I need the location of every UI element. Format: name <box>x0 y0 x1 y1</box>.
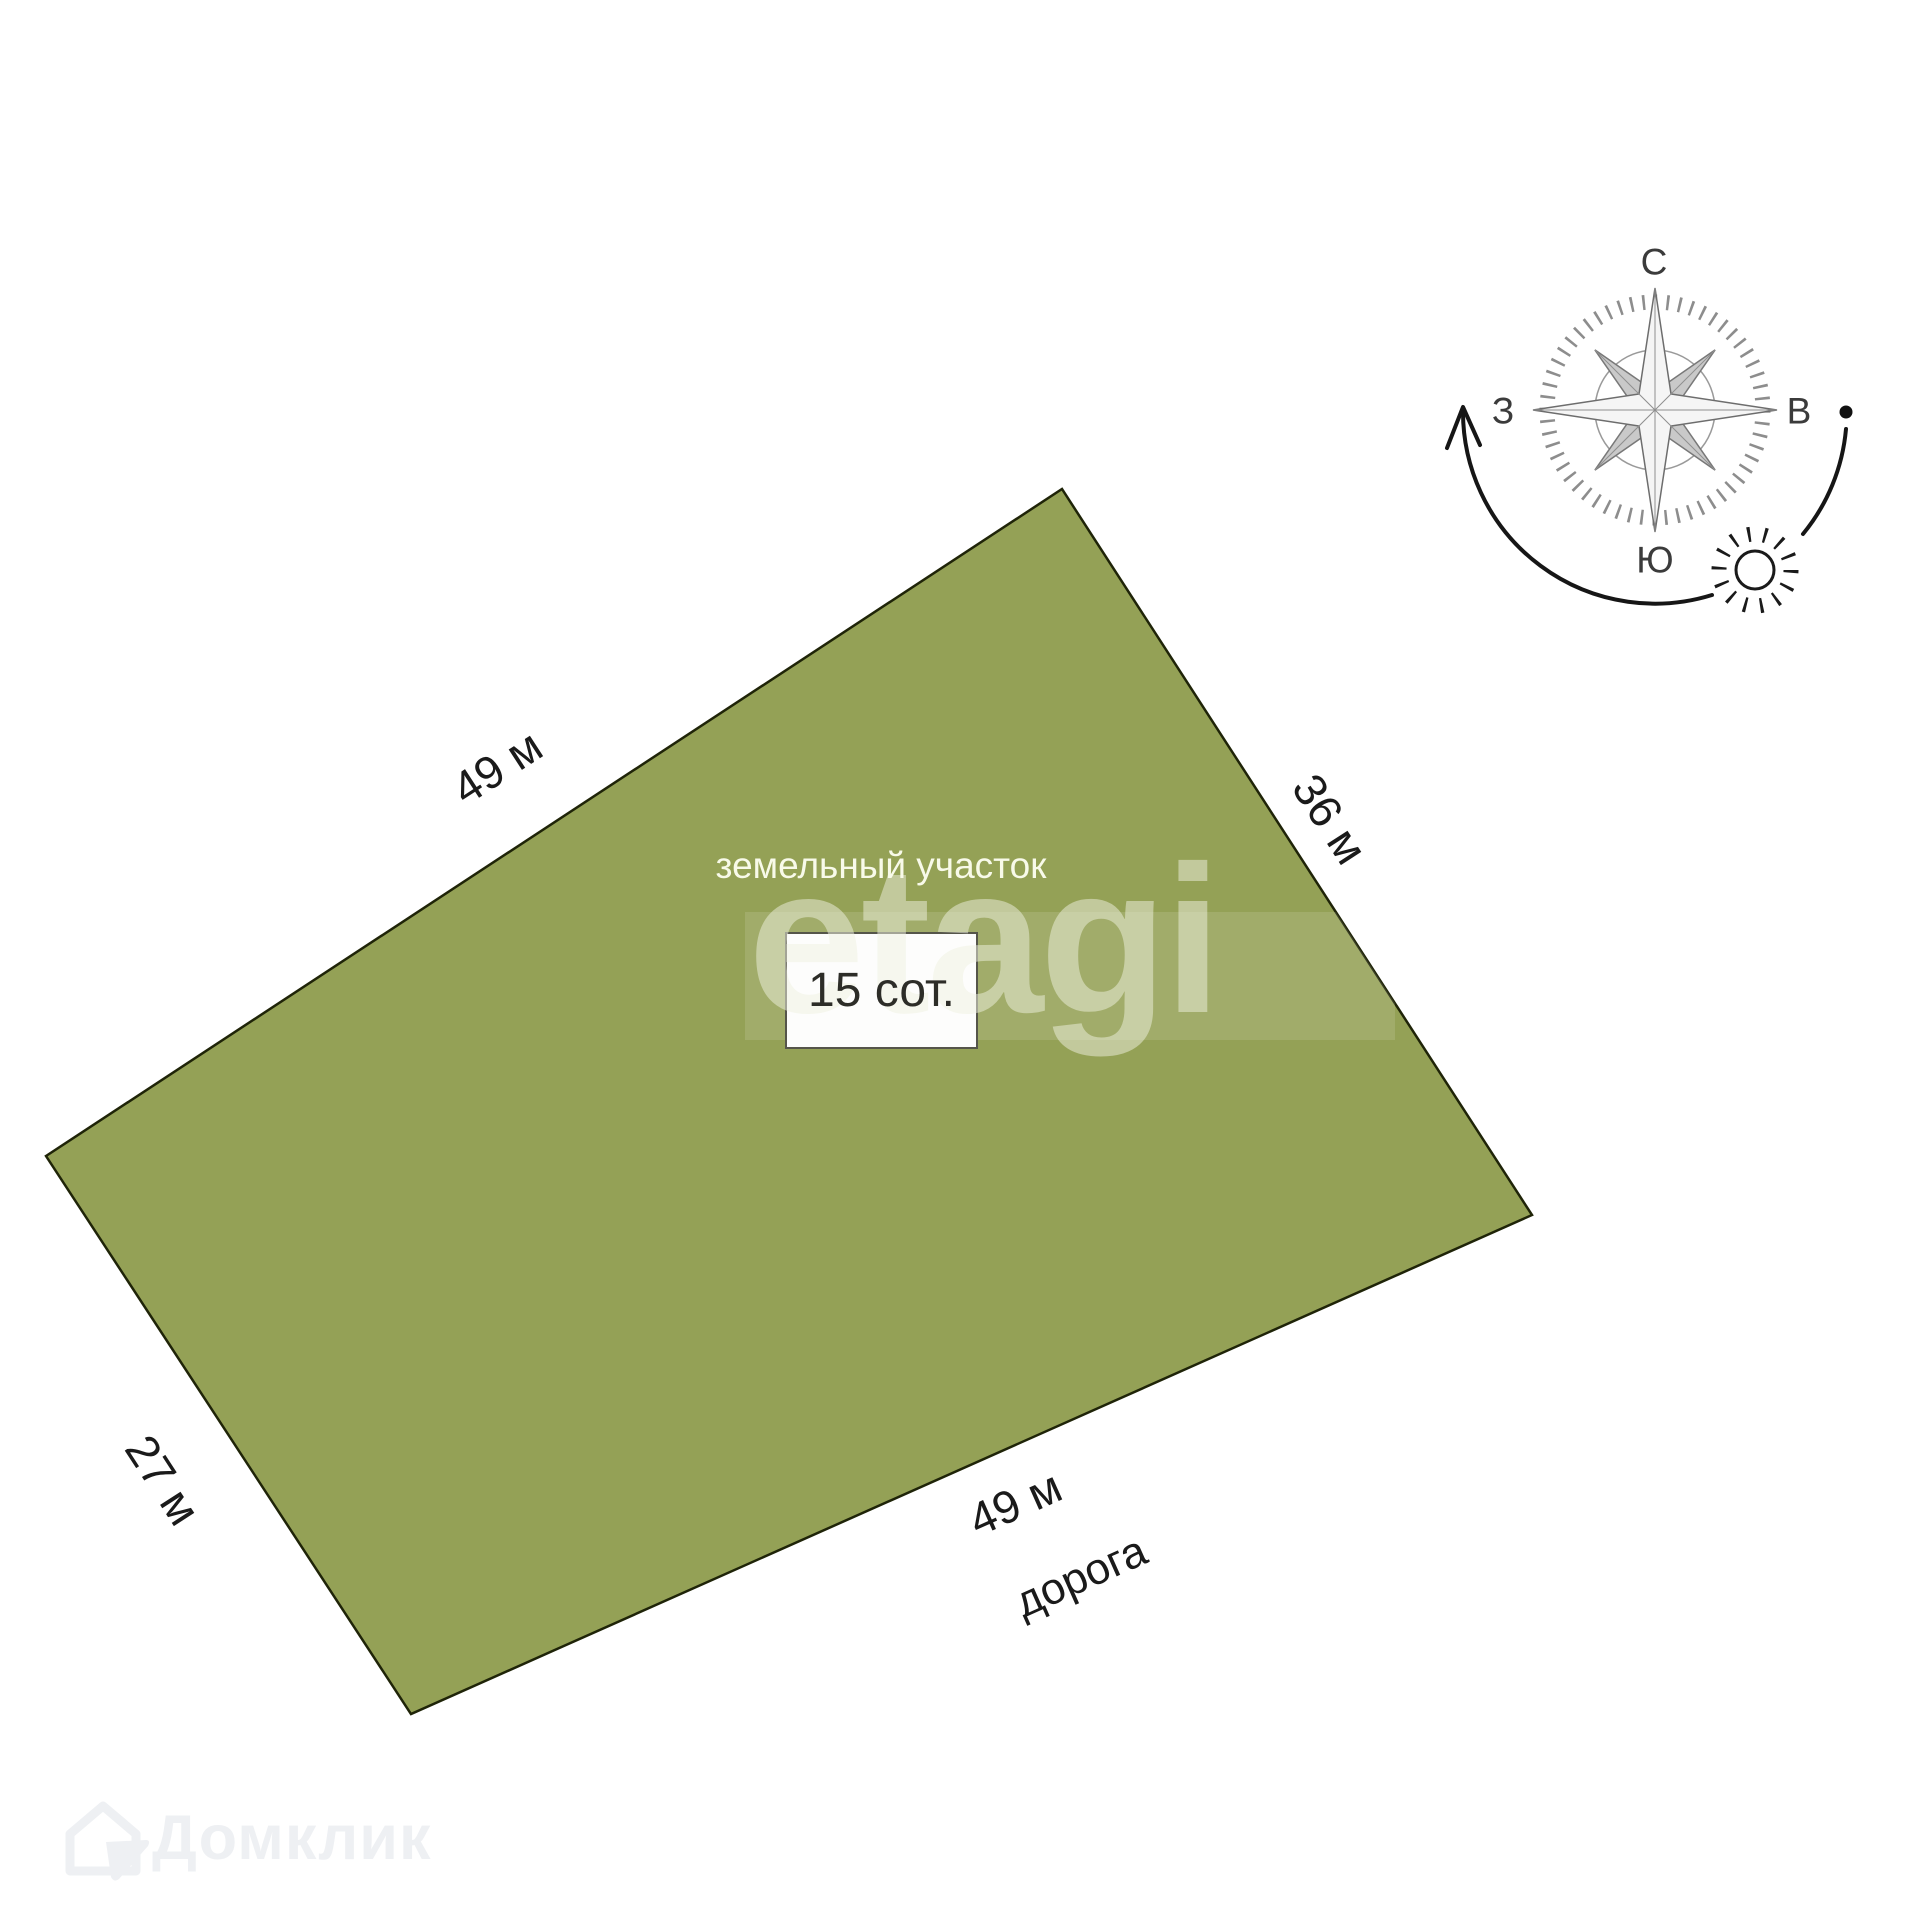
domklik-logo-icon <box>70 1806 149 1881</box>
sun-icon <box>1719 534 1791 606</box>
compass-label-west: З <box>1492 391 1514 432</box>
compass-rose: С Ю З В <box>1492 242 1812 581</box>
sun-disc <box>1736 551 1774 589</box>
area-label: 15 сот. <box>786 933 977 1048</box>
site-plan-canvas: etagi <box>0 0 1920 1920</box>
compass-label-north: С <box>1641 242 1668 283</box>
east-dot <box>1840 406 1853 419</box>
plot-polygon <box>46 489 1532 1714</box>
compass-spines <box>1533 288 1777 532</box>
compass-label-east: В <box>1787 391 1812 432</box>
compass-label-south: Ю <box>1636 540 1673 581</box>
domklik-watermark: Домклик <box>152 1802 432 1874</box>
plot-label: земельный участок <box>716 845 1047 887</box>
